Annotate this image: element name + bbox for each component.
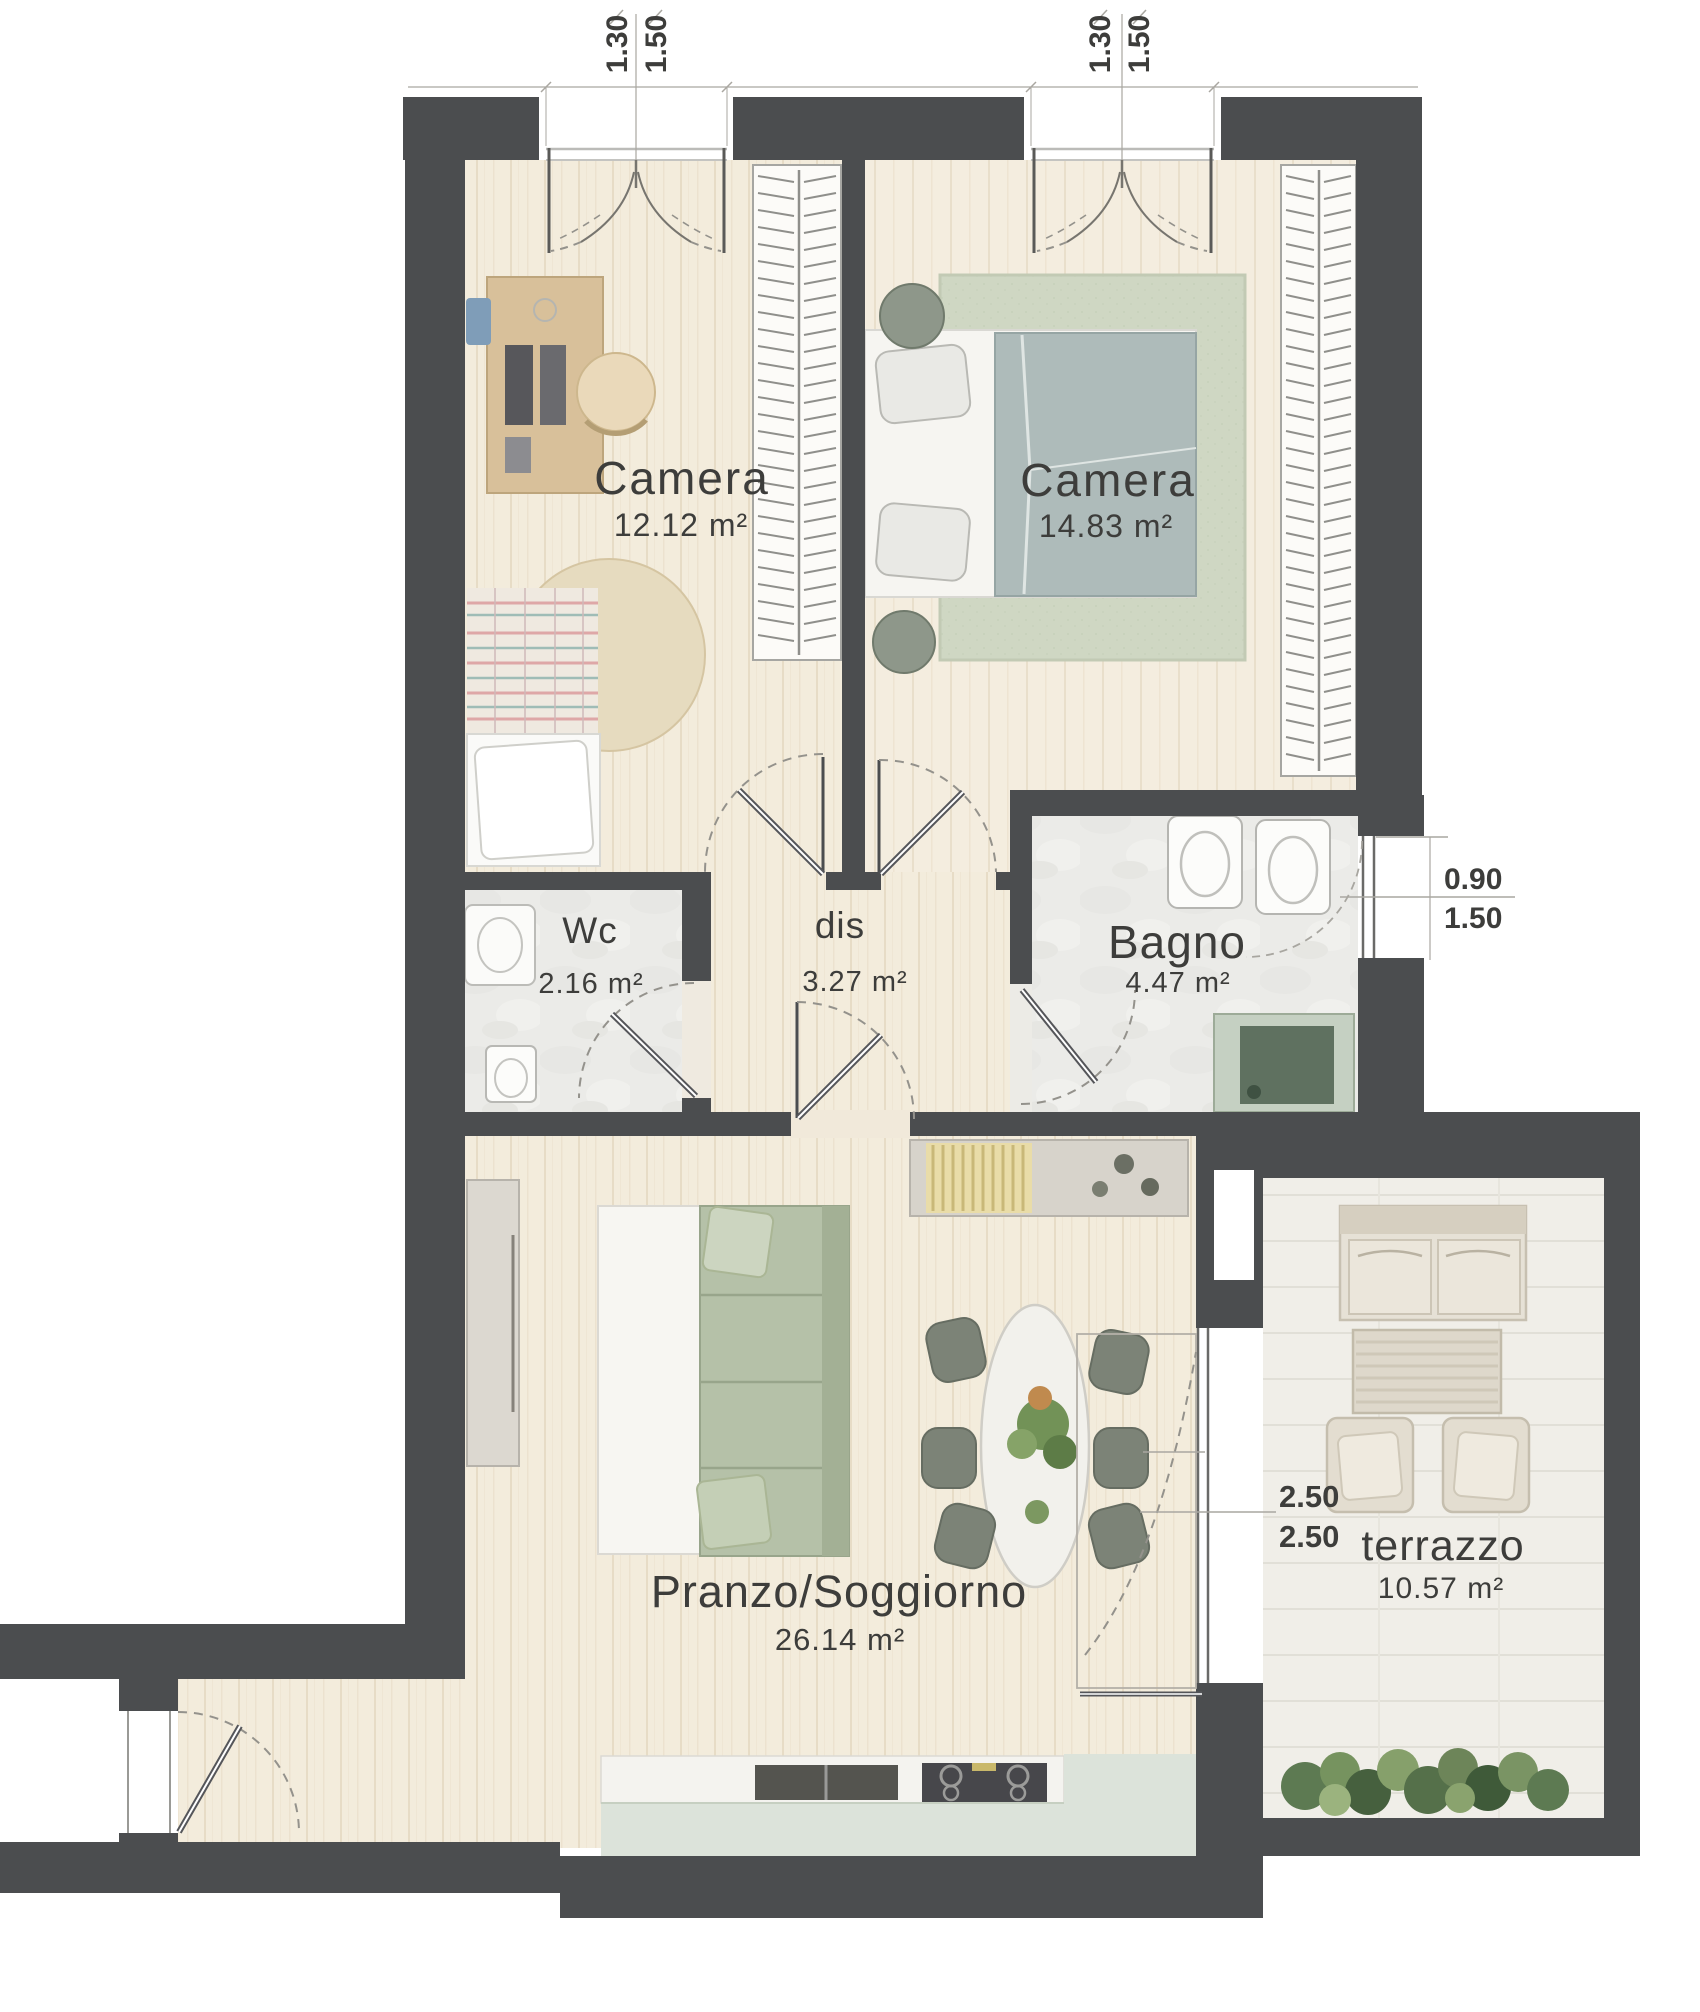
svg-text:Wc: Wc: [562, 910, 617, 951]
svg-text:1.50: 1.50: [1123, 15, 1156, 73]
svg-text:4.47 m²: 4.47 m²: [1125, 967, 1230, 999]
svg-text:2.16 m²: 2.16 m²: [538, 968, 643, 1000]
svg-text:1.50: 1.50: [1444, 902, 1502, 935]
svg-text:14.83 m²: 14.83 m²: [1039, 508, 1173, 544]
svg-text:1.30: 1.30: [1084, 15, 1117, 73]
svg-text:1.50: 1.50: [640, 15, 673, 73]
svg-text:1.30: 1.30: [601, 15, 634, 73]
svg-text:dis: dis: [815, 905, 865, 946]
svg-text:3.27 m²: 3.27 m²: [802, 966, 907, 998]
svg-text:26.14 m²: 26.14 m²: [775, 1622, 905, 1657]
svg-text:10.57 m²: 10.57 m²: [1378, 1572, 1504, 1605]
svg-text:2.50: 2.50: [1279, 1519, 1339, 1554]
svg-text:Camera: Camera: [594, 452, 770, 504]
svg-text:12.12 m²: 12.12 m²: [614, 507, 748, 543]
svg-text:Bagno: Bagno: [1108, 916, 1246, 968]
svg-text:Camera: Camera: [1020, 454, 1196, 506]
svg-text:2.50: 2.50: [1279, 1479, 1339, 1514]
svg-text:0.90: 0.90: [1444, 863, 1502, 896]
svg-text:terrazzo: terrazzo: [1361, 1522, 1524, 1570]
svg-text:Pranzo/Soggiorno: Pranzo/Soggiorno: [651, 1566, 1027, 1617]
